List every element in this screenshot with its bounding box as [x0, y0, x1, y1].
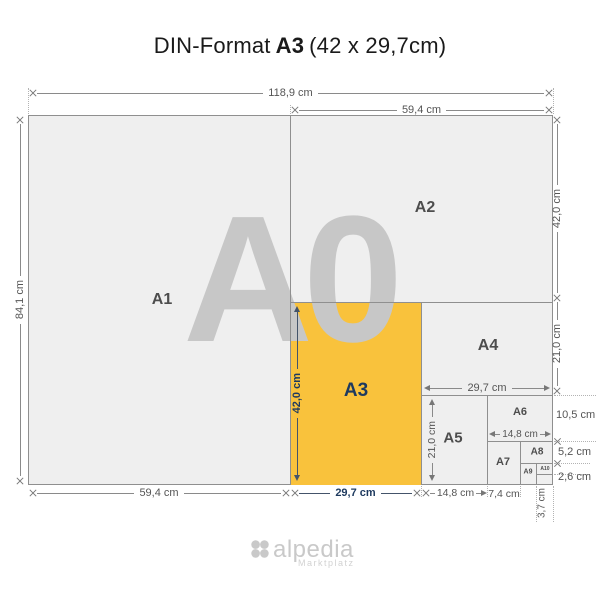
label-a6: A6 [513, 406, 527, 418]
brand-tagline: Marktplatz [298, 558, 355, 568]
dim-tick [544, 106, 553, 115]
dim-total-height: 84,1 cm [14, 115, 26, 485]
label-a7: A7 [496, 456, 510, 468]
dim-tick [553, 459, 562, 468]
dim-tick [290, 106, 299, 115]
dim-tick [553, 115, 562, 124]
label-a10: A10 [540, 466, 549, 472]
dim-a1-width: 59,4 cm [28, 487, 290, 499]
dim-a8-height: 5,2 cm [558, 446, 591, 458]
dim-arrow [545, 431, 551, 437]
dim-tick [553, 293, 562, 302]
divider-a3 [421, 302, 422, 485]
label-a2: A2 [415, 199, 435, 217]
dim-a2-height: 42,0 cm [551, 115, 563, 302]
guide-line [553, 88, 554, 114]
dim-a7-width: 7,4 cm [488, 488, 520, 500]
label-a1: A1 [152, 291, 172, 309]
dim-tick [28, 489, 37, 498]
label-a3: A3 [344, 380, 368, 402]
label-a8: A8 [531, 447, 544, 458]
dim-a5-inner-height: 21,0 cm [426, 399, 438, 481]
dim-tick [16, 115, 25, 124]
label-a5: A5 [443, 430, 462, 447]
title-prefix: DIN-Format [154, 33, 271, 58]
label-a4: A4 [478, 337, 498, 355]
dim-arrow [481, 490, 487, 496]
dim-a6-height: 10,5 cm [556, 409, 595, 421]
alpedia-clover-icon [250, 539, 270, 559]
dim-tick [421, 489, 430, 498]
label-a9: A9 [524, 469, 533, 476]
guide-line [553, 486, 554, 522]
dim-top-right-width: 59,4 cm [290, 104, 553, 116]
din-format-infographic: DIN-FormatA3(42 x 29,7cm) A0 A1 A2 A3 A4… [0, 0, 600, 600]
dim-tick [28, 89, 37, 98]
title-format: A3 [276, 33, 305, 58]
dim-tick [412, 489, 421, 498]
dim-a9-width: 3,7 cm [537, 488, 548, 518]
dim-tick [553, 437, 562, 446]
dim-arrow [429, 475, 435, 481]
dim-arrow [544, 385, 550, 391]
dim-a4-inner-width: 29,7 cm [424, 382, 550, 394]
page-title: DIN-FormatA3(42 x 29,7cm) [0, 33, 600, 59]
guide-line [554, 395, 596, 396]
divider-a5 [487, 395, 488, 485]
dim-a5-width: 14,8 cm [421, 487, 487, 499]
dim-tick [290, 489, 299, 498]
title-suffix: (42 x 29,7cm) [309, 33, 446, 58]
dim-a6-inner-width: 14,8 cm [489, 428, 551, 440]
dim-tick [281, 489, 290, 498]
dim-tick [544, 89, 553, 98]
dim-tick [553, 386, 562, 395]
dim-a3-inner-height: 42,0 cm [291, 306, 303, 481]
footer-logo: alpedia Marktplatz [250, 534, 354, 562]
a0-watermark: A0 [183, 190, 393, 370]
dim-arrow [294, 475, 300, 481]
dim-a4-height: 21,0 cm [551, 302, 563, 395]
dim-total-width: 118,9 cm [28, 87, 553, 99]
dim-a3-width: 29,7 cm [290, 487, 421, 499]
divider-a10 [536, 474, 553, 475]
dim-tick [16, 476, 25, 485]
dim-a10-height: 2,6 cm [558, 471, 591, 483]
